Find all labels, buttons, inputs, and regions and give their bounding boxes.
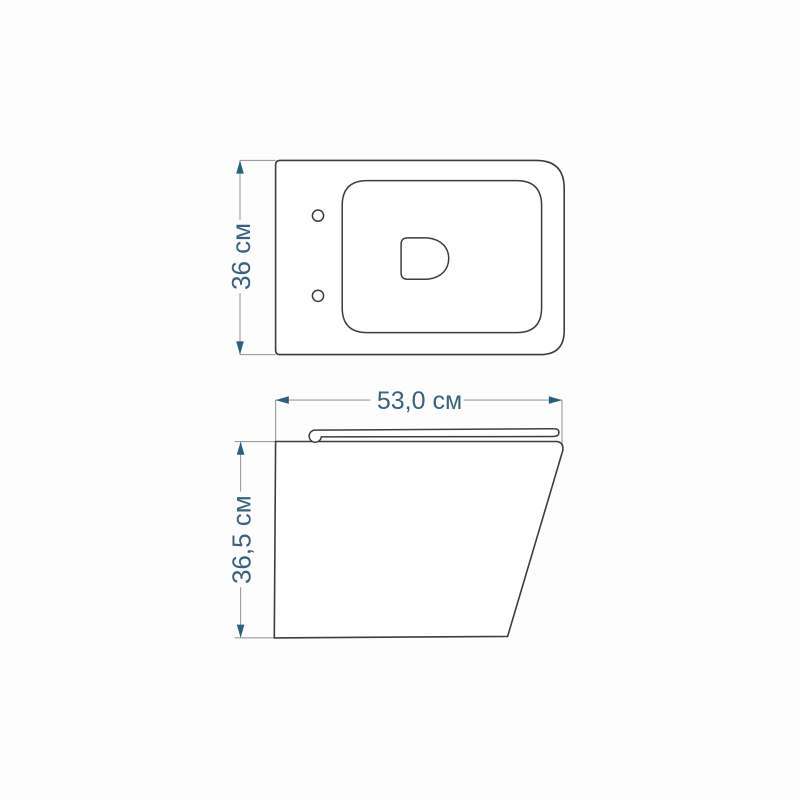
svg-text:36,5 см: 36,5 см bbox=[226, 495, 256, 584]
svg-text:36 см: 36 см bbox=[226, 223, 256, 290]
svg-text:53,0 см: 53,0 см bbox=[377, 387, 462, 415]
